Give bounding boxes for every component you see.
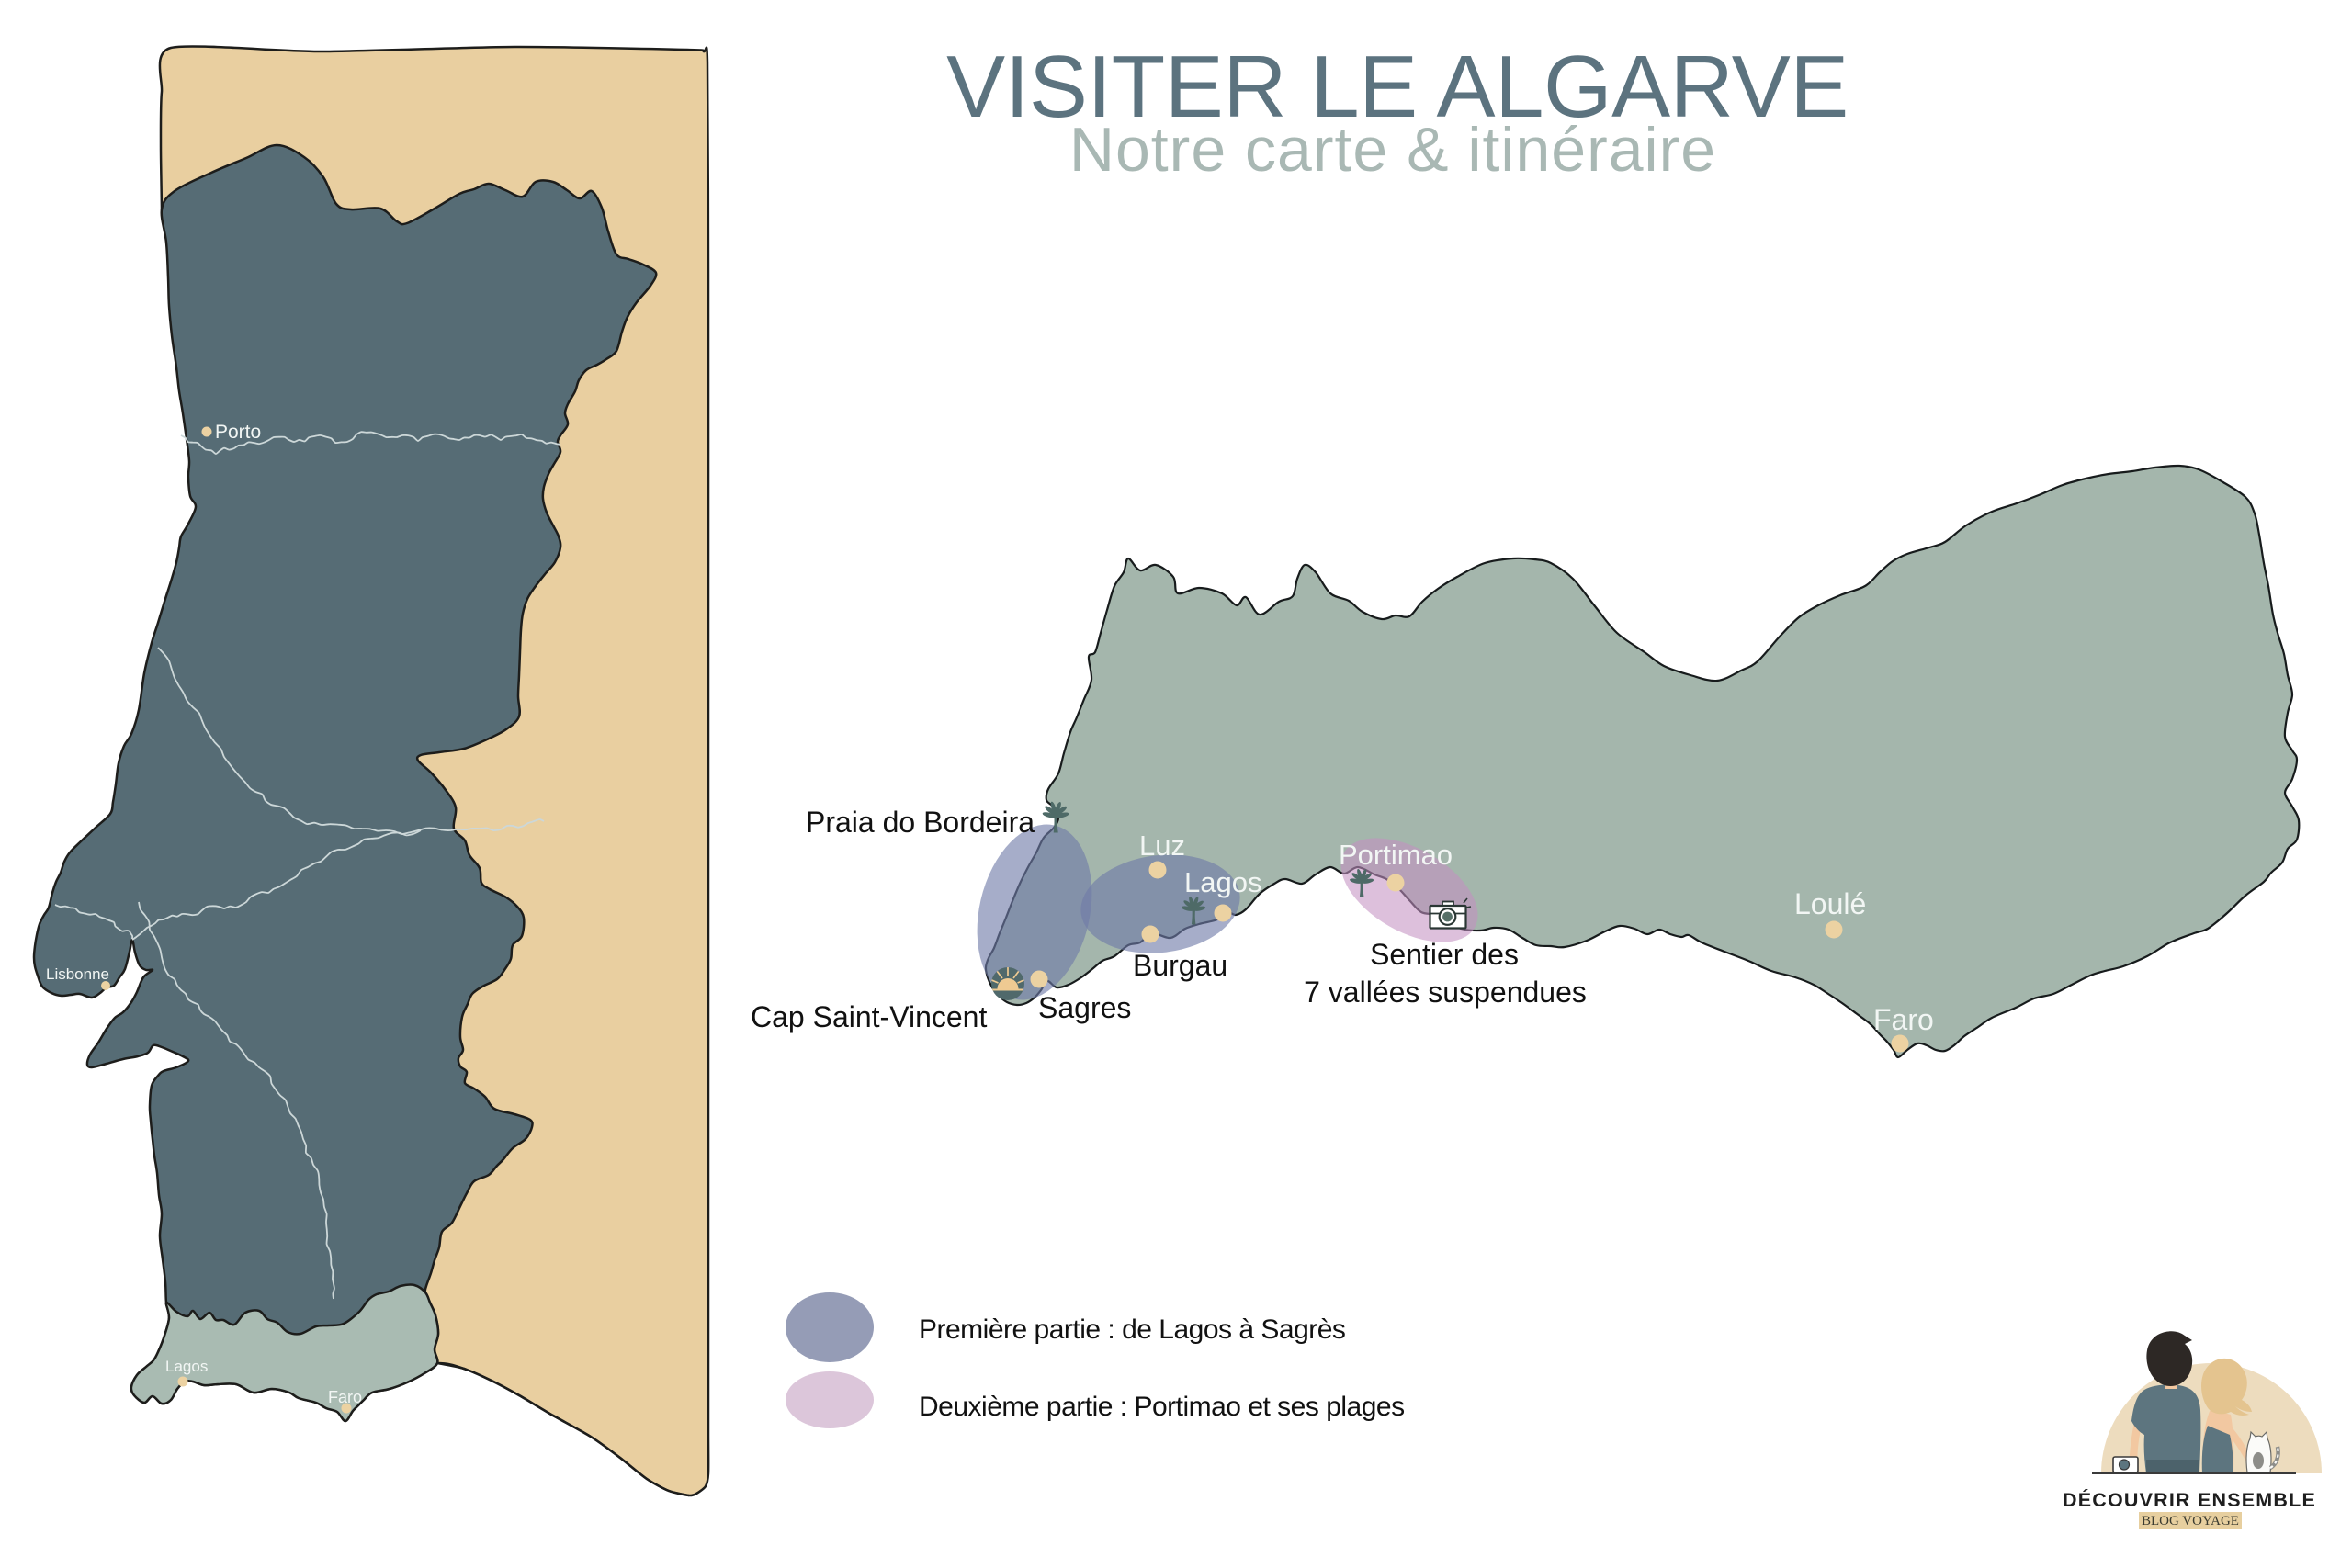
svg-text:Luz: Luz [1139,829,1185,862]
svg-text:Faro: Faro [1873,1003,1934,1036]
svg-text:Notre carte & itinéraire: Notre carte & itinéraire [1069,115,1716,185]
svg-text:Porto: Porto [215,422,261,443]
svg-text:Lisbonne: Lisbonne [46,965,109,983]
svg-text:Portimao: Portimao [1339,839,1453,871]
svg-text:Cap Saint-Vincent: Cap Saint-Vincent [751,1000,987,1033]
svg-text:7 vallées suspendues: 7 vallées suspendues [1304,976,1587,1009]
svg-text:Praia do Bordeira: Praia do Bordeira [806,806,1035,839]
svg-text:Faro: Faro [328,1388,362,1406]
svg-text:Burgau: Burgau [1133,949,1227,982]
svg-text:BLOG VOYAGE: BLOG VOYAGE [2142,1514,2239,1529]
svg-text:Sagres: Sagres [1038,991,1131,1024]
svg-text:Loulé: Loulé [1794,887,1866,920]
svg-text:Deuxième partie : Portimao et: Deuxième partie : Portimao et ses plages [919,1392,1405,1422]
svg-text:DÉCOUVRIR ENSEMBLE: DÉCOUVRIR ENSEMBLE [2063,1488,2316,1511]
svg-text:Lagos: Lagos [1184,866,1261,898]
svg-text:Première partie : de Lagos à S: Première partie : de Lagos à Sagrès [919,1314,1345,1345]
svg-text:Lagos: Lagos [165,1358,208,1375]
svg-text:Sentier des: Sentier des [1370,938,1519,971]
